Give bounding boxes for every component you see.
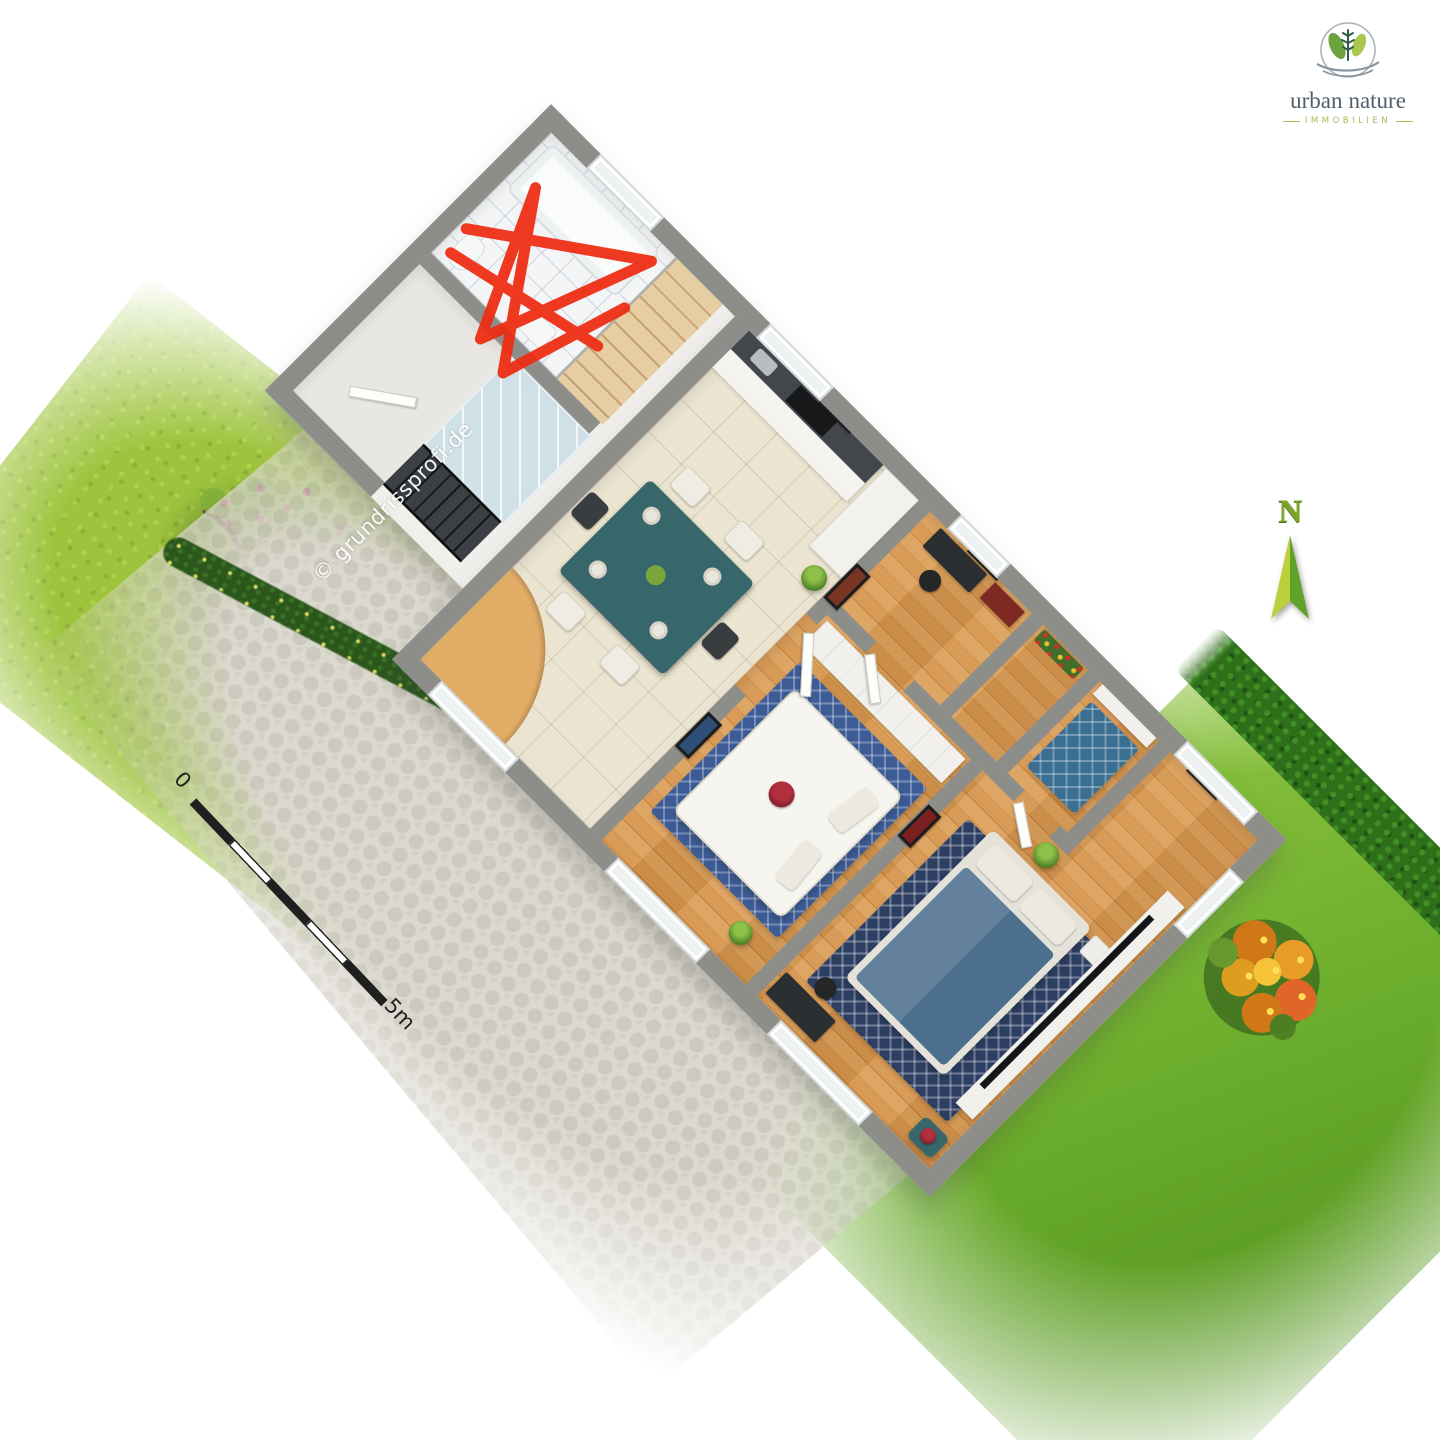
tagline-rule — [1396, 121, 1413, 122]
centerpiece — [642, 561, 670, 589]
north-indicator: N — [1258, 496, 1322, 616]
brand-tagline: IMMOBILIEN — [1272, 116, 1424, 126]
floorplan-canvas: © grundrissprofi.de 0 5m N — [0, 0, 1440, 1440]
brand-logo: urbannature IMMOBILIEN — [1272, 20, 1424, 126]
brand-name: urbannature — [1272, 88, 1424, 113]
tagline-rule — [1283, 121, 1300, 122]
site-scene: © grundrissprofi.de — [0, 0, 1440, 1440]
north-label: N — [1258, 496, 1322, 529]
north-arrow-icon — [1262, 531, 1318, 623]
logo-emblem-icon — [1273, 20, 1423, 84]
